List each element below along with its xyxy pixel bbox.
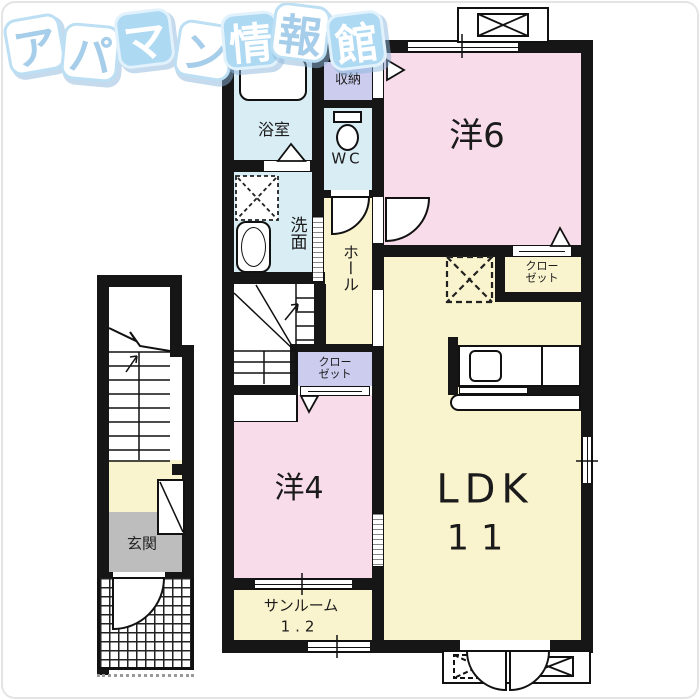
wall-closet-hall-top	[290, 344, 372, 352]
bath-door-opening	[264, 160, 310, 172]
wall-storage-bottom	[324, 100, 372, 108]
label-bedroom4: 洋4	[274, 472, 323, 506]
ac-unit-terrace-icon	[524, 657, 573, 676]
porch-dotted-edge	[97, 674, 194, 677]
label-sunroom-size: 1.2	[281, 619, 320, 636]
stair-landing	[234, 395, 298, 422]
hall-ldk-opening	[372, 290, 384, 346]
wall-kitchen-stub	[448, 337, 458, 395]
terrace-door-left-arc	[467, 651, 506, 690]
terrace-outline	[443, 651, 590, 683]
label-entrance: 玄関	[127, 536, 157, 553]
toilet-tank-icon	[333, 111, 362, 123]
label-toilet: WC	[331, 151, 362, 168]
floorplan-canvas: 浴室 収納 WC 洗面 ホール クロー ゼット クロー ゼット 洋6 洋4 LD…	[0, 0, 700, 700]
kitchen-counter-divider	[541, 346, 543, 386]
ac-unit-top-icon	[458, 8, 548, 42]
label-ldk: LDK	[436, 468, 533, 513]
label-hall: ホール	[340, 244, 358, 292]
label-bathroom: 浴室	[258, 121, 290, 139]
closet6-doors	[512, 245, 572, 257]
window-sunroom-bottom	[308, 640, 370, 653]
window-bedroom6-top	[408, 40, 518, 53]
wall-washroom-bottom	[222, 272, 325, 284]
label-closet-hall-line2: ゼット	[319, 369, 352, 381]
window-ldk-right	[581, 437, 593, 483]
kitchen-counter-front	[450, 394, 581, 411]
bedroom4-sliding-door	[372, 513, 384, 567]
external-stairs	[109, 328, 170, 461]
logo-tile-2: パ	[60, 22, 122, 84]
label-ldk-size: 11	[447, 519, 516, 558]
room-ldk	[384, 257, 581, 640]
ext-wall-stub	[172, 464, 184, 475]
wall-closet6-bottom	[495, 292, 581, 302]
wall-right	[581, 40, 593, 653]
wall-stairs-hall	[314, 284, 326, 352]
label-closet-hall: クロー ゼット	[319, 357, 352, 382]
wall-closet-hall-left	[290, 344, 298, 388]
wc-door-opening	[331, 190, 369, 198]
logo-tile-7: 館	[325, 9, 389, 73]
logo-tile-3: マ	[113, 7, 177, 71]
kitchen-counter-edge	[459, 387, 528, 394]
toilet-bowl-icon	[336, 124, 359, 151]
front-door-leaf	[157, 479, 185, 535]
logo-tile-6: 報	[269, 1, 333, 65]
label-sunroom: サンルーム	[264, 598, 339, 615]
bedroom6-door-opening	[372, 197, 384, 243]
label-washroom: 洗面	[286, 216, 305, 250]
washroom-sliding-door	[312, 216, 324, 282]
washbasin-bowl-icon	[241, 227, 266, 267]
entrance-porch-hatch	[97, 578, 194, 670]
closet-hall-doors	[300, 386, 370, 396]
label-storage: 収納	[335, 74, 361, 89]
label-bedroom6: 洋6	[449, 117, 505, 155]
terrace-door-right-arc	[510, 651, 549, 690]
ac-spot-dashed-icon	[454, 655, 504, 678]
kitchen-sink-icon	[469, 350, 502, 382]
window-bedroom4-sunroom	[255, 578, 352, 590]
wall-stairs-bottom	[222, 385, 298, 395]
ext-wall-right-lower	[182, 345, 194, 578]
label-closet-bedroom6: クロー ゼット	[526, 261, 559, 286]
label-closet6-line2: ゼット	[526, 273, 559, 285]
wall-left	[222, 40, 234, 653]
logo-tile-1: ア	[1, 11, 67, 77]
ldk-terrace-door-opening	[460, 640, 550, 653]
